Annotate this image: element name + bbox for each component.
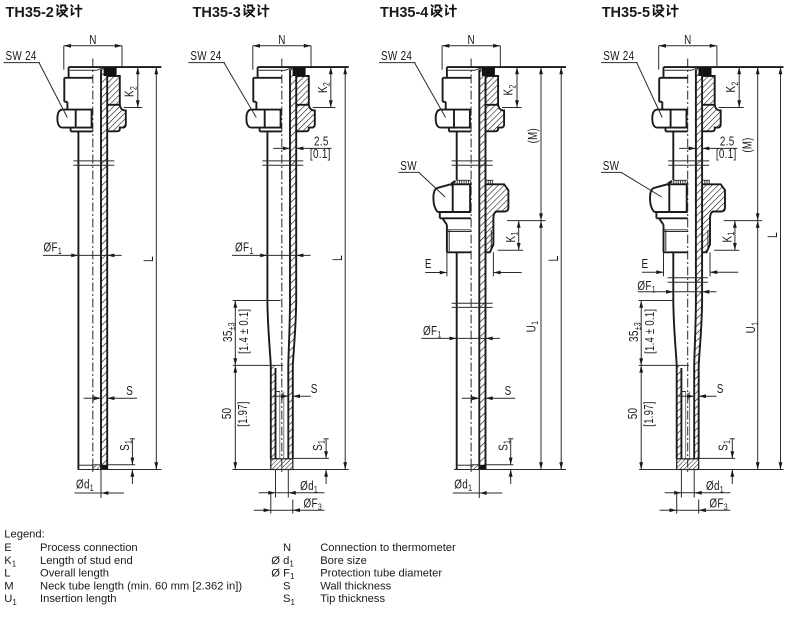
svg-text:L: L — [329, 255, 345, 261]
svg-text:SW: SW — [603, 159, 620, 174]
svg-text:S: S — [505, 383, 512, 398]
svg-text:N: N — [89, 33, 96, 48]
svg-text:K1: K1 — [720, 231, 736, 242]
svg-text:[0.1]: [0.1] — [310, 147, 331, 162]
svg-text:TH35-3: TH35-3 — [193, 5, 241, 21]
svg-text:U1: U1 — [744, 322, 760, 334]
svg-text:S: S — [126, 383, 133, 398]
svg-text:N: N — [283, 542, 291, 554]
svg-text:L: L — [545, 256, 561, 262]
svg-text:S1: S1 — [311, 440, 327, 451]
svg-text:ØF1: ØF1 — [423, 323, 442, 339]
svg-text:Ø d1: Ø d1 — [271, 555, 294, 569]
svg-text:Connection to thermometer: Connection to thermometer — [320, 542, 456, 554]
svg-text:N: N — [278, 33, 285, 48]
svg-text:ØF1: ØF1 — [235, 240, 254, 256]
svg-text:S: S — [283, 580, 290, 592]
svg-text:S1: S1 — [283, 593, 295, 607]
svg-text:(M): (M) — [742, 137, 756, 152]
svg-text:Wall thickness: Wall thickness — [320, 580, 391, 592]
svg-text:Ød1: Ød1 — [76, 477, 94, 493]
svg-text:L: L — [765, 232, 781, 238]
svg-text:L: L — [140, 256, 156, 262]
svg-text:SW: SW — [400, 159, 417, 174]
svg-text:[1.4 ± 0.1]: [1.4 ± 0.1] — [644, 309, 658, 354]
svg-text:K2: K2 — [724, 81, 740, 92]
svg-text:S1: S1 — [496, 440, 512, 451]
svg-text:N: N — [684, 33, 691, 48]
svg-text:S1: S1 — [716, 440, 732, 451]
svg-text:K1: K1 — [503, 231, 519, 242]
svg-text:[1.4 ± 0.1]: [1.4 ± 0.1] — [238, 309, 252, 354]
svg-text:SW 24: SW 24 — [6, 48, 37, 63]
svg-text:E: E — [642, 257, 649, 272]
svg-text:ØF3: ØF3 — [304, 496, 323, 512]
svg-text:Bore size: Bore size — [320, 555, 367, 567]
svg-text:50: 50 — [220, 408, 235, 420]
svg-text:Ød1: Ød1 — [706, 478, 724, 494]
svg-text:U1: U1 — [524, 321, 540, 333]
svg-text:S: S — [311, 381, 318, 396]
svg-text:S1: S1 — [118, 440, 134, 451]
svg-text:Length of stud end: Length of stud end — [40, 555, 133, 567]
svg-text:K2: K2 — [122, 86, 138, 97]
svg-text:Protection tube diameter: Protection tube diameter — [320, 568, 442, 580]
svg-text:N: N — [468, 33, 475, 48]
svg-text:35±3: 35±3 — [221, 322, 237, 342]
svg-text:SW 24: SW 24 — [603, 48, 634, 63]
svg-text:E: E — [4, 542, 11, 554]
svg-text:SW 24: SW 24 — [381, 48, 412, 63]
svg-text:[1.97]: [1.97] — [643, 401, 657, 426]
svg-text:TH35-5: TH35-5 — [602, 5, 650, 21]
svg-text:SW 24: SW 24 — [190, 48, 221, 63]
svg-text:[1.97]: [1.97] — [237, 401, 251, 426]
svg-text:M: M — [4, 580, 13, 592]
svg-text:Ø F1: Ø F1 — [271, 568, 295, 582]
svg-text:U1: U1 — [4, 593, 17, 607]
svg-text:ØF3: ØF3 — [709, 496, 728, 512]
svg-text:Insertion length: Insertion length — [40, 593, 117, 605]
svg-text:L: L — [4, 568, 10, 580]
svg-text:Tip thickness: Tip thickness — [320, 593, 385, 605]
svg-text:35±3: 35±3 — [627, 322, 643, 342]
svg-text:E: E — [425, 257, 432, 272]
svg-text:Ød1: Ød1 — [454, 477, 472, 493]
svg-text:[0.1]: [0.1] — [716, 147, 737, 162]
svg-text:Overall length: Overall length — [40, 568, 109, 580]
svg-text:Legend:: Legend: — [4, 529, 44, 541]
svg-text:S: S — [717, 381, 724, 396]
svg-text:K2: K2 — [315, 82, 331, 93]
svg-text:(M): (M) — [527, 128, 541, 143]
svg-text:K2: K2 — [501, 84, 517, 95]
svg-text:Process connection: Process connection — [40, 542, 138, 554]
svg-text:Neck tube length (min. 60 mm [: Neck tube length (min. 60 mm [2.362 in]) — [40, 580, 242, 592]
svg-text:50: 50 — [625, 408, 640, 420]
svg-text:K1: K1 — [4, 555, 16, 569]
svg-text:TH35-4: TH35-4 — [380, 5, 428, 21]
svg-text:ØF1: ØF1 — [44, 240, 63, 256]
svg-text:TH35-2: TH35-2 — [6, 5, 54, 21]
svg-text:Ød1: Ød1 — [300, 478, 318, 494]
